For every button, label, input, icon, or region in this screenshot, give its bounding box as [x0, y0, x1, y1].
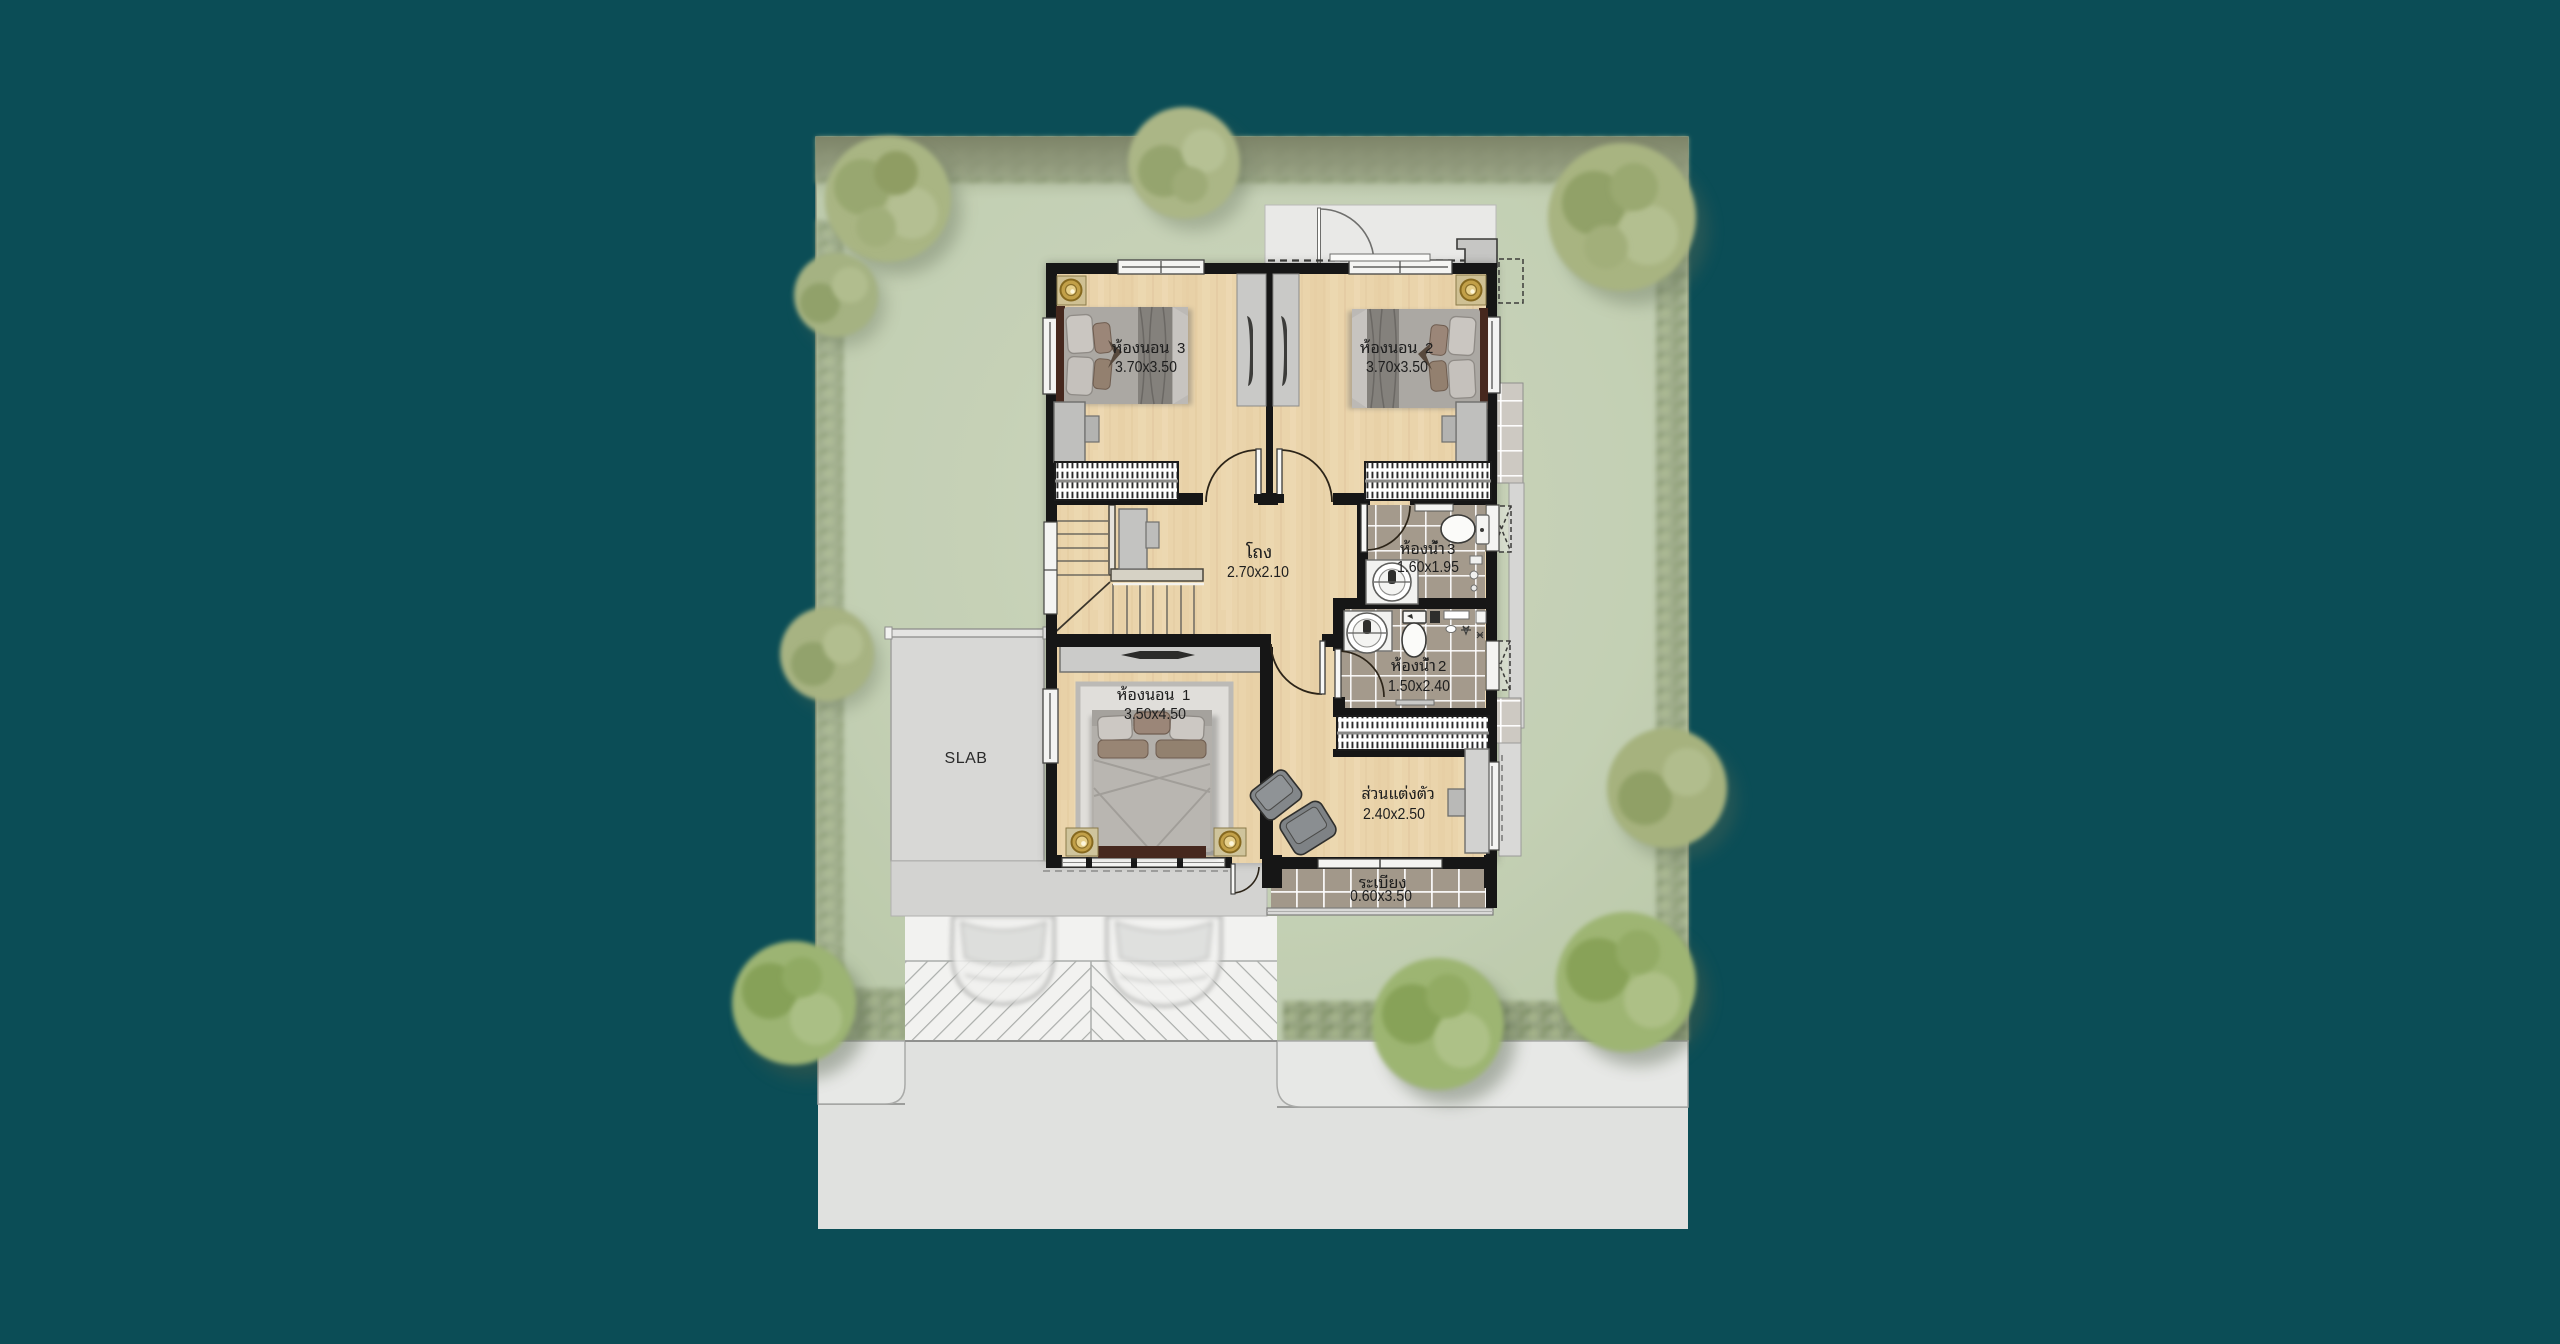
svg-text:3: 3 — [1177, 340, 1185, 357]
svg-text:1.60x1.95: 1.60x1.95 — [1397, 559, 1459, 576]
svg-text:1.50x2.40: 1.50x2.40 — [1388, 678, 1450, 695]
svg-text:2: 2 — [1438, 658, 1446, 675]
svg-text:SLAB: SLAB — [945, 750, 988, 767]
svg-text:3: 3 — [1447, 541, 1455, 558]
svg-text:1: 1 — [1182, 687, 1190, 704]
svg-text:2.70x2.10: 2.70x2.10 — [1227, 564, 1289, 581]
svg-text:2: 2 — [1425, 340, 1433, 357]
svg-text:2.40x2.50: 2.40x2.50 — [1363, 806, 1425, 823]
svg-text:3.70x3.50: 3.70x3.50 — [1115, 359, 1177, 376]
svg-text:3.70x3.50: 3.70x3.50 — [1366, 359, 1428, 376]
svg-text:0.60x3.50: 0.60x3.50 — [1350, 888, 1412, 905]
svg-text:3.50x4.50: 3.50x4.50 — [1124, 706, 1186, 723]
